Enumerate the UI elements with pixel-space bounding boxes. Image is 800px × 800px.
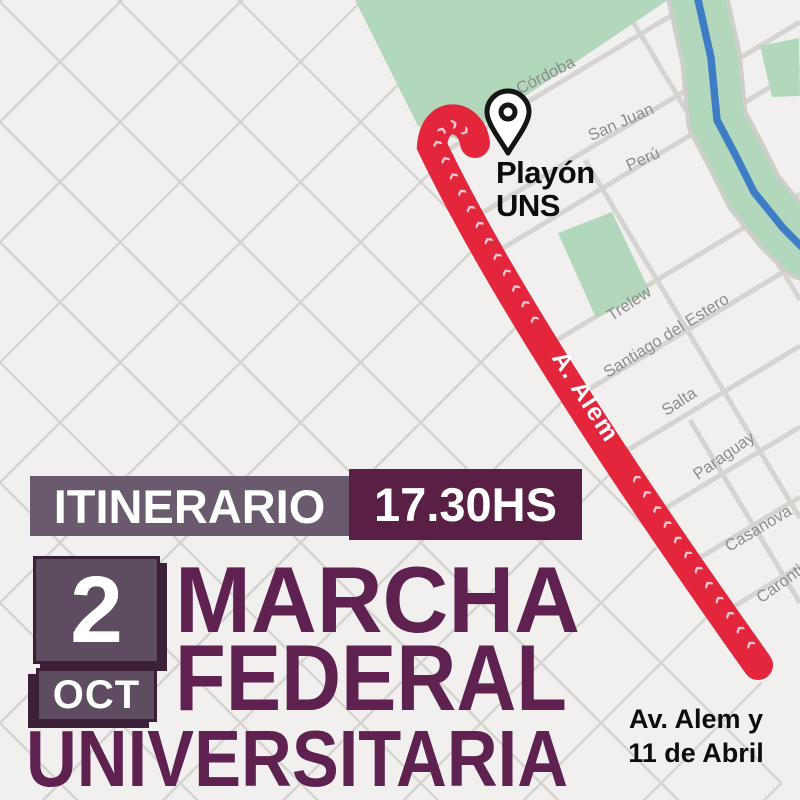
destination-label-line1: Playón (496, 157, 595, 190)
date-month-text: OCT (53, 673, 140, 718)
date-month-box: OCT (36, 668, 157, 722)
itinerary-banner: ITINERARIO (30, 476, 349, 536)
event-poster: Córdoba San Juan Perú Trelew Santiago de… (0, 0, 800, 800)
meeting-point-note: Av. Alem y 11 de Abril (598, 703, 794, 771)
destination-label: Playón UNS (496, 157, 595, 223)
meeting-point-line2: 11 de Abril (598, 737, 794, 771)
time-banner: 17.30HS (349, 469, 582, 540)
itinerary-banner-text: ITINERARIO (54, 479, 326, 534)
destination-label-line2: UNS (496, 190, 595, 223)
date-day-text: 2 (70, 556, 123, 665)
meeting-point-line1: Av. Alem y (598, 703, 794, 737)
time-text: 17.30HS (374, 477, 557, 532)
date-day-box: 2 (33, 556, 160, 664)
